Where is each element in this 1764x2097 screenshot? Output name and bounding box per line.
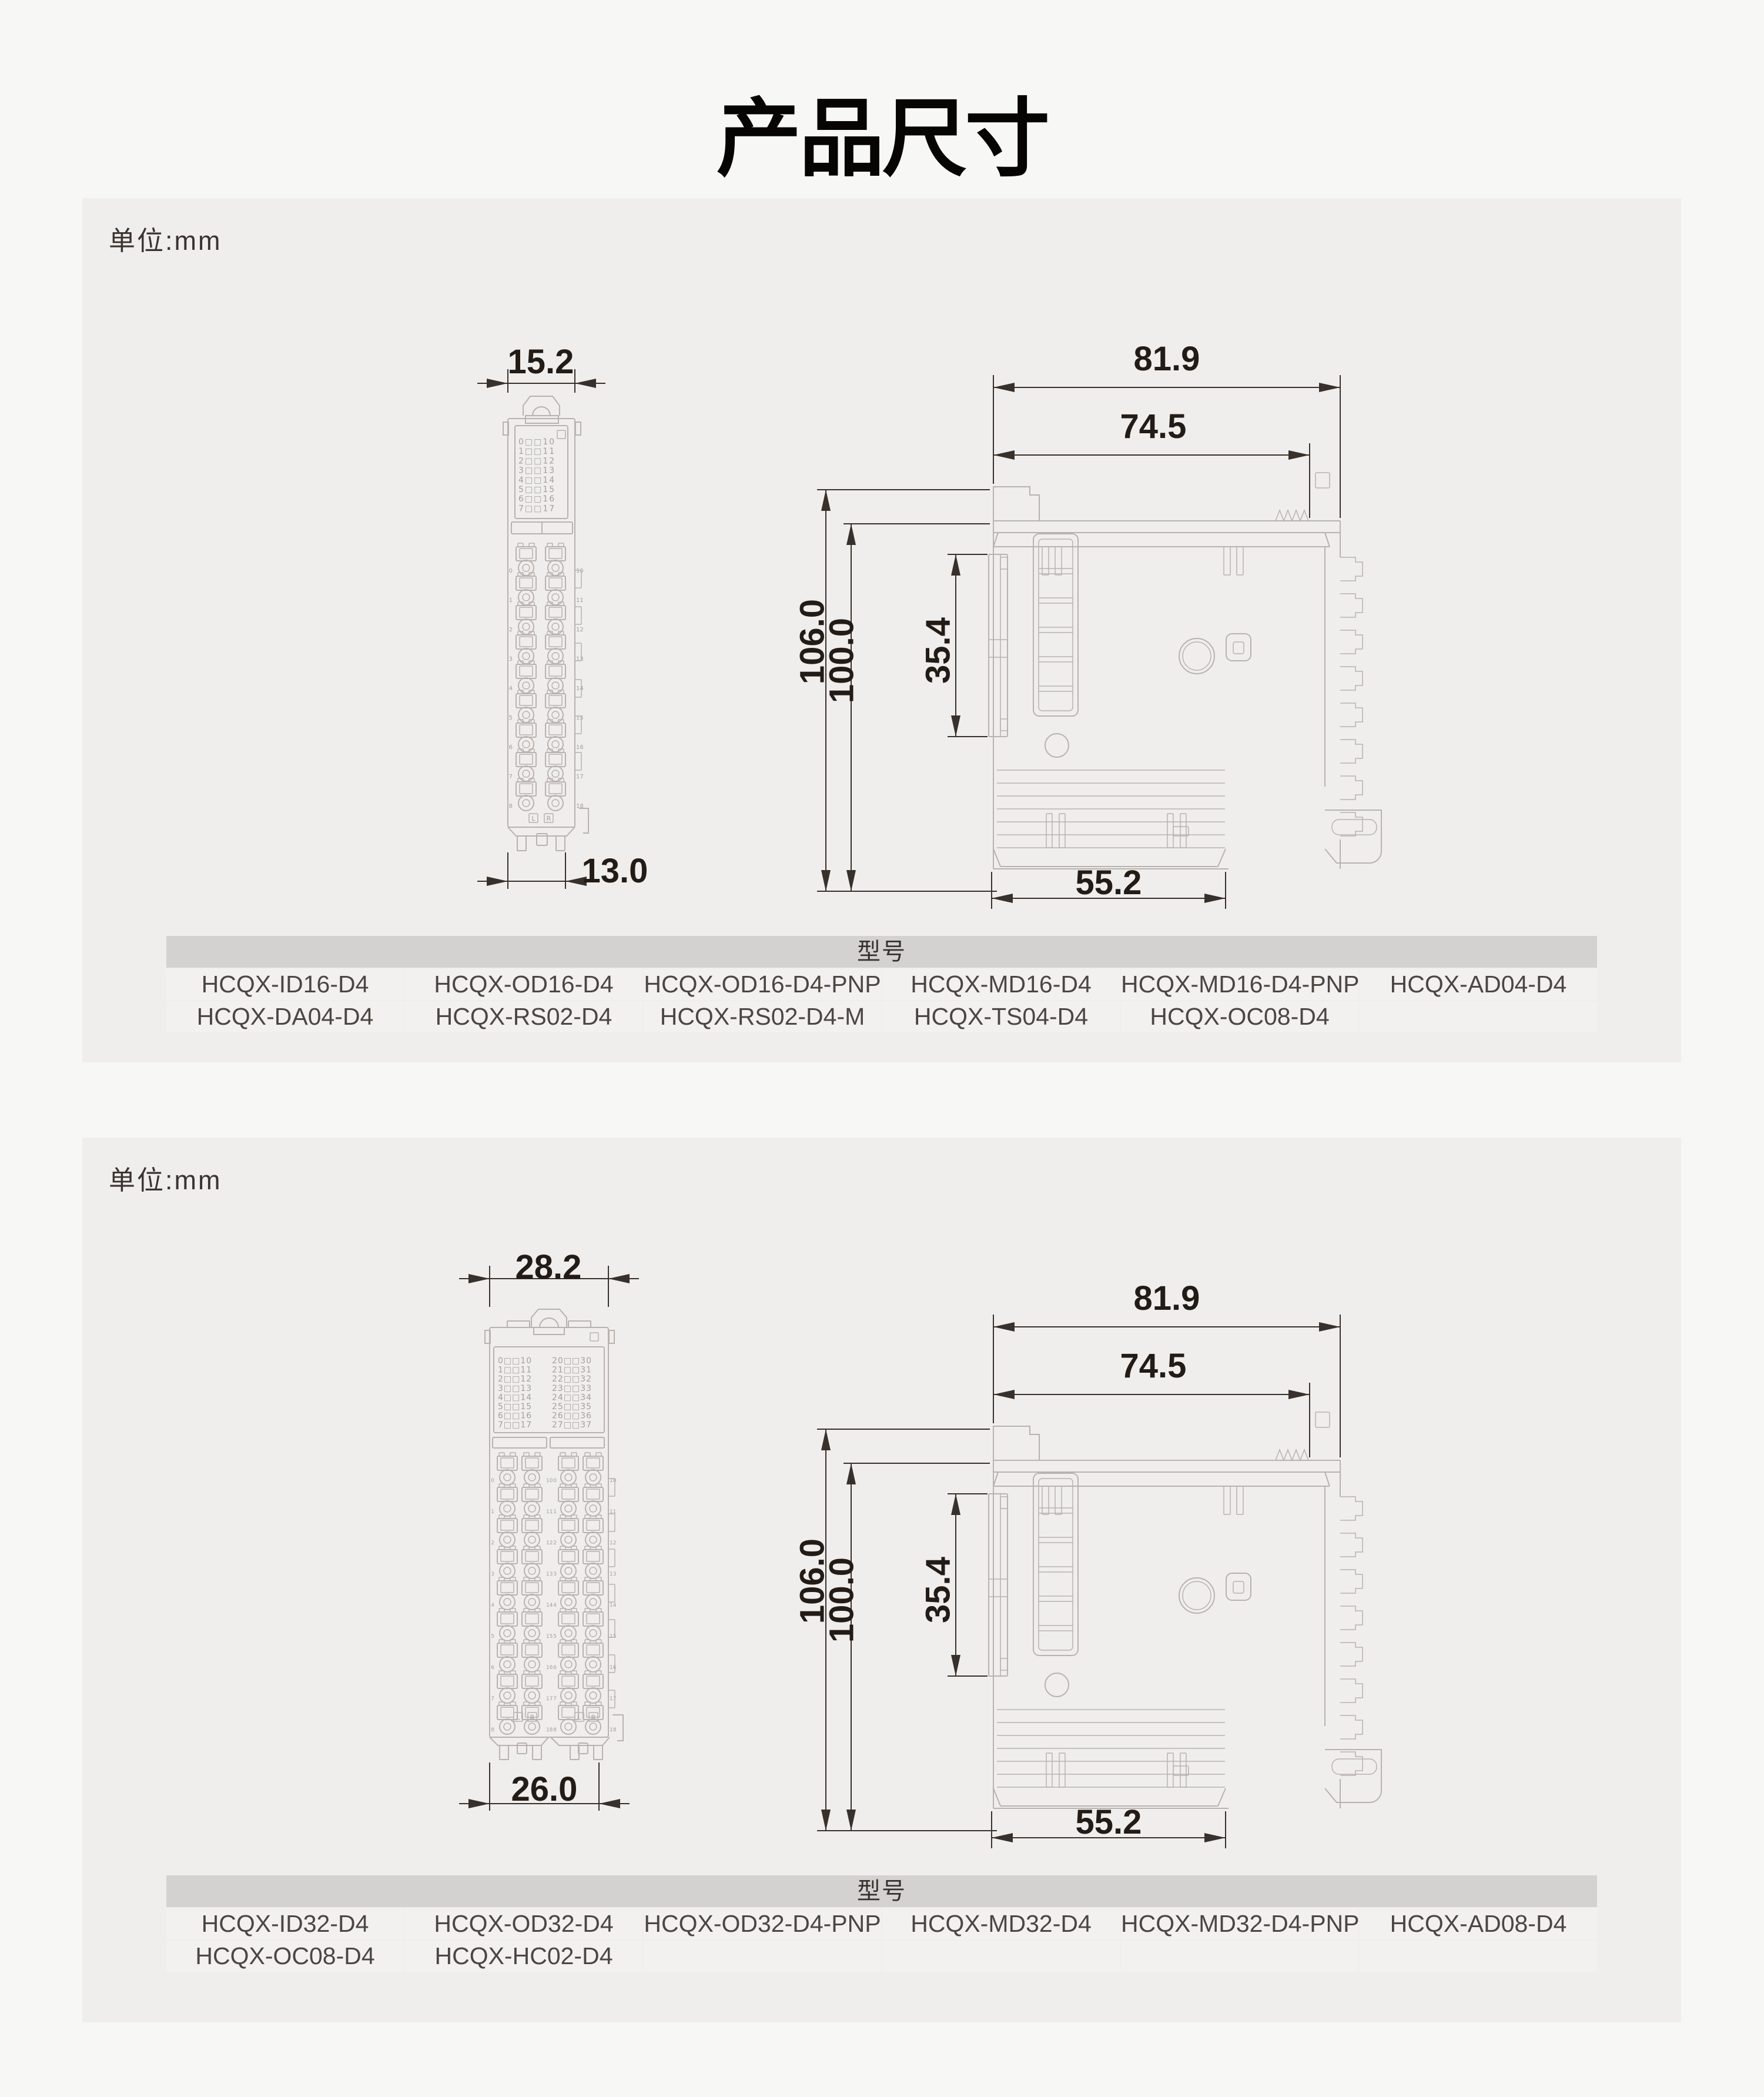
model-cell — [1360, 1001, 1597, 1032]
dim-front-width-label: 28.2 — [460, 1248, 637, 1287]
model-cell: HCQX-ID32-D4 — [166, 1908, 404, 1939]
dim-din-clip-height-label: 35.4 — [919, 563, 958, 739]
model-cell: HCQX-OD16-D4 — [405, 969, 642, 1000]
dim-side-overall-width-label: 81.9 — [1079, 1279, 1255, 1318]
front-view-drawing: 0□□101□□112□□123□□134□□145□□156□□167□□17… — [458, 294, 635, 905]
dim-din-clip-height-label: 35.4 — [919, 1502, 958, 1678]
svg-text:0□□10: 0□□10 — [518, 437, 555, 447]
dim-front-width-label: 15.2 — [453, 342, 629, 382]
svg-text:7: 7 — [491, 1696, 494, 1702]
unit-label: 单位:mm — [109, 219, 222, 257]
dim-side-bottom-width-label: 55.2 — [1020, 863, 1197, 902]
svg-text:8: 8 — [491, 1727, 494, 1733]
dim-side-body-width-label: 74.5 — [1065, 1346, 1241, 1386]
model-cell: HCQX-DA04-D4 — [166, 1001, 404, 1032]
svg-text:26□□36: 26□□36 — [552, 1412, 592, 1421]
dimension-section-2: 单位:mm 0□□101□□112□□123□□134□□145□□156□□1… — [82, 1138, 1681, 2022]
svg-text:5: 5 — [509, 715, 513, 721]
svg-text:R: R — [547, 815, 551, 822]
svg-text:10: 10 — [546, 1478, 553, 1484]
svg-text:23□□33: 23□□33 — [552, 1384, 592, 1393]
model-cell — [1121, 1941, 1358, 1972]
svg-text:4□□14: 4□□14 — [498, 1393, 532, 1402]
svg-text:6□□16: 6□□16 — [518, 494, 555, 504]
svg-text:17: 17 — [546, 1696, 553, 1702]
model-cell: HCQX-HC02-D4 — [405, 1941, 642, 1972]
svg-text:7□□17: 7□□17 — [498, 1420, 532, 1430]
model-cell: HCQX-TS04-D4 — [882, 1001, 1120, 1032]
svg-text:3: 3 — [491, 1571, 494, 1577]
svg-text:12: 12 — [546, 1540, 553, 1546]
svg-text:3: 3 — [553, 1571, 557, 1577]
unit-label: 单位:mm — [109, 1159, 222, 1197]
model-table-body: HCQX-ID16-D4HCQX-OD16-D4HCQX-OD16-D4-PNP… — [166, 969, 1597, 1032]
dim-side-bottom-width-label: 55.2 — [1020, 1802, 1197, 1842]
dim-front-bottom-width-label: 26.0 — [456, 1770, 632, 1809]
svg-text:25□□35: 25□□35 — [552, 1402, 592, 1412]
svg-text:24□□34: 24□□34 — [552, 1393, 592, 1402]
svg-text:18: 18 — [610, 1727, 617, 1733]
dim-front-bottom-width-label: 13.0 — [527, 851, 703, 891]
svg-text:14: 14 — [546, 1603, 553, 1608]
svg-text:27□□37: 27□□37 — [552, 1420, 592, 1430]
svg-text:3□□13: 3□□13 — [518, 466, 555, 476]
svg-text:8: 8 — [509, 803, 513, 810]
svg-text:L: L — [516, 1714, 520, 1721]
svg-text:6: 6 — [553, 1665, 557, 1671]
svg-text:3: 3 — [509, 656, 513, 663]
svg-text:18: 18 — [546, 1727, 553, 1733]
model-cell — [644, 1941, 881, 1972]
svg-text:11: 11 — [576, 597, 584, 604]
model-cell: HCQX-ID16-D4 — [166, 969, 404, 1000]
model-cell: HCQX-OC08-D4 — [1121, 1001, 1358, 1032]
svg-text:1: 1 — [509, 597, 513, 604]
model-table: 型号 HCQX-ID32-D4HCQX-OD32-D4HCQX-OD32-D4-… — [166, 1875, 1597, 1972]
svg-text:8: 8 — [553, 1727, 557, 1733]
svg-text:5: 5 — [553, 1634, 557, 1640]
model-cell: HCQX-OD32-D4-PNP — [644, 1908, 881, 1939]
svg-text:15: 15 — [546, 1634, 553, 1640]
dim-side-body-width-label: 74.5 — [1065, 407, 1241, 446]
svg-text:16: 16 — [576, 744, 584, 751]
model-cell: HCQX-MD16-D4-PNP — [1121, 969, 1358, 1000]
svg-text:0□□10: 0□□10 — [498, 1356, 532, 1366]
table-header-model: 型号 — [166, 936, 1597, 968]
page-title: 产品尺寸 — [0, 69, 1764, 193]
svg-text:4: 4 — [509, 685, 513, 692]
svg-text:5: 5 — [491, 1634, 494, 1640]
svg-text:R: R — [530, 1714, 535, 1721]
svg-text:16: 16 — [610, 1665, 617, 1671]
model-table: 型号 HCQX-ID16-D4HCQX-OD16-D4HCQX-OD16-D4-… — [166, 936, 1597, 1032]
dim-side-body-height-label: 100.0 — [822, 573, 862, 749]
svg-text:4: 4 — [491, 1603, 494, 1608]
dim-side-overall-width-label: 81.9 — [1079, 339, 1255, 379]
table-header-model: 型号 — [166, 1875, 1597, 1907]
model-cell: HCQX-MD16-D4 — [882, 969, 1120, 1000]
svg-text:12: 12 — [610, 1540, 616, 1546]
svg-text:4: 4 — [553, 1603, 557, 1608]
svg-text:7: 7 — [509, 774, 513, 780]
svg-text:6: 6 — [491, 1665, 494, 1671]
svg-text:5□□15: 5□□15 — [518, 485, 555, 494]
svg-text:2: 2 — [553, 1540, 557, 1546]
svg-text:5□□15: 5□□15 — [498, 1402, 532, 1412]
model-cell: HCQX-AD08-D4 — [1360, 1908, 1597, 1939]
dim-side-body-height-label: 100.0 — [822, 1512, 862, 1688]
svg-text:6: 6 — [509, 744, 513, 751]
svg-text:13: 13 — [576, 656, 584, 663]
svg-text:14: 14 — [576, 685, 584, 692]
svg-text:R: R — [591, 1714, 596, 1721]
svg-text:13: 13 — [546, 1571, 553, 1577]
svg-text:13: 13 — [610, 1571, 616, 1577]
model-cell: HCQX-RS02-D4-M — [644, 1001, 881, 1032]
svg-text:20□□30: 20□□30 — [552, 1356, 592, 1366]
svg-text:4□□14: 4□□14 — [518, 476, 555, 485]
model-cell: HCQX-RS02-D4 — [405, 1001, 642, 1032]
svg-text:16: 16 — [546, 1665, 553, 1671]
svg-text:1□□11: 1□□11 — [498, 1366, 532, 1375]
svg-text:11: 11 — [546, 1509, 553, 1515]
svg-text:21□□31: 21□□31 — [552, 1366, 592, 1375]
svg-text:L: L — [577, 1714, 581, 1721]
svg-text:1: 1 — [491, 1509, 494, 1515]
svg-text:7□□17: 7□□17 — [518, 504, 555, 513]
svg-text:1□□11: 1□□11 — [518, 447, 555, 456]
model-cell: HCQX-OC08-D4 — [166, 1941, 404, 1972]
model-cell: HCQX-MD32-D4 — [882, 1908, 1120, 1939]
svg-text:12: 12 — [576, 627, 584, 633]
model-cell — [882, 1941, 1120, 1972]
svg-text:2: 2 — [509, 627, 513, 633]
model-cell — [1360, 1941, 1597, 1972]
svg-text:2□□12: 2□□12 — [498, 1374, 532, 1384]
svg-text:L: L — [531, 815, 535, 822]
svg-text:3□□13: 3□□13 — [498, 1384, 532, 1393]
model-cell: HCQX-AD04-D4 — [1360, 969, 1597, 1000]
svg-text:22□□32: 22□□32 — [552, 1374, 592, 1384]
svg-text:7: 7 — [553, 1696, 557, 1702]
front-view-drawing: 0□□101□□112□□123□□134□□145□□156□□167□□17… — [423, 1232, 676, 1825]
svg-text:10: 10 — [576, 568, 584, 574]
model-table-body: HCQX-ID32-D4HCQX-OD32-D4HCQX-OD32-D4-PNP… — [166, 1908, 1597, 1972]
svg-text:2: 2 — [491, 1540, 494, 1546]
svg-text:0: 0 — [491, 1478, 494, 1484]
model-cell: HCQX-MD32-D4-PNP — [1121, 1908, 1358, 1939]
svg-text:6□□16: 6□□16 — [498, 1412, 532, 1421]
svg-text:0: 0 — [553, 1478, 557, 1484]
svg-text:2□□12: 2□□12 — [518, 456, 555, 466]
svg-text:1: 1 — [553, 1509, 557, 1515]
model-cell: HCQX-OD16-D4-PNP — [644, 969, 881, 1000]
dimension-section-1: 单位:mm 0□□101□□112□□123□□134□□145□□156□□1… — [82, 198, 1681, 1062]
svg-text:17: 17 — [576, 774, 584, 780]
model-cell: HCQX-OD32-D4 — [405, 1908, 642, 1939]
svg-text:0: 0 — [509, 568, 513, 574]
svg-text:14: 14 — [610, 1603, 617, 1608]
